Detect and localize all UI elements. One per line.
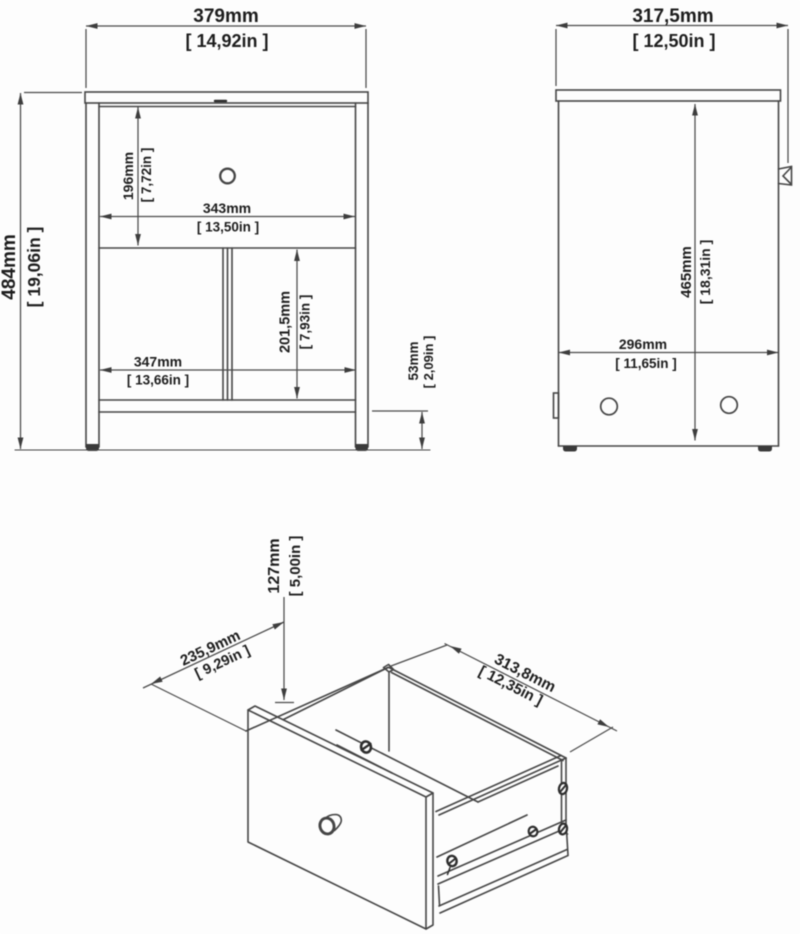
svg-text:[ 7,93in ]: [ 7,93in ] [298,295,313,350]
svg-text:296mm: 296mm [619,336,667,352]
svg-text:201,5mm: 201,5mm [278,291,294,353]
svg-text:127mm: 127mm [266,538,283,593]
svg-text:347mm: 347mm [134,354,182,370]
svg-text:[ 11,65in ]: [ 11,65in ] [615,356,677,371]
svg-text:[ 19,06in ]: [ 19,06in ] [24,227,44,308]
svg-text:317,5mm: 317,5mm [632,6,713,27]
svg-text:[ 14,92in ]: [ 14,92in ] [185,31,268,51]
svg-text:[ 13,66in ]: [ 13,66in ] [127,373,189,388]
svg-text:53mm: 53mm [406,341,421,380]
svg-text:[ 7,72in ]: [ 7,72in ] [139,148,154,203]
svg-text:343mm: 343mm [203,200,251,216]
svg-text:[ 5,00in ]: [ 5,00in ] [287,536,304,597]
svg-text:379mm: 379mm [193,6,259,27]
svg-text:465mm: 465mm [678,246,695,298]
svg-text:[ 2,09in ]: [ 2,09in ] [421,336,436,389]
svg-text:[ 18,31in ]: [ 18,31in ] [697,240,713,305]
svg-text:484mm: 484mm [0,234,20,300]
svg-text:[ 13,50in ]: [ 13,50in ] [197,220,259,235]
svg-text:[ 12,50in ]: [ 12,50in ] [632,31,715,51]
svg-text:196mm: 196mm [120,152,136,200]
